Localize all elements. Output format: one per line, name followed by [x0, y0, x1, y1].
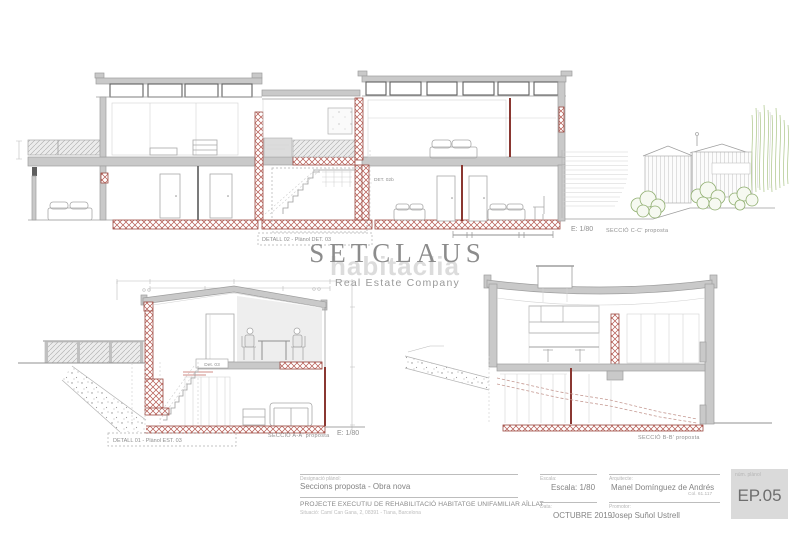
section-cc-title: SECCIÓ C-C' proposta	[606, 227, 669, 234]
lower-interior-bb	[497, 368, 772, 431]
date-value: OCTUBRE 2019	[553, 511, 612, 520]
det-02b-label: DET. 02b	[374, 177, 394, 183]
architect-name: Manel Domínguez de Andrés	[611, 483, 714, 492]
section-bb-drawing: SECCIÓ B-B' proposta	[405, 266, 772, 441]
scale-bar	[453, 231, 553, 238]
slab-bb	[497, 364, 705, 380]
right-module-interior	[355, 71, 572, 228]
designation-value: Seccions proposta - Obra nova	[300, 482, 410, 491]
detail-01-callout: DETALL 01 - Plànol EST. 03	[108, 433, 236, 446]
section-bb-title: SECCIÓ B-B' proposta	[638, 434, 700, 441]
terrace	[16, 140, 100, 159]
fence-and-terrain-aa	[18, 341, 146, 432]
section-aa-title: SECCIÓ A-A' proposta	[268, 432, 330, 439]
setclaus-tagline: Real Estate Company	[290, 277, 505, 289]
section-cc-scale: E: 1/80	[571, 226, 593, 233]
drawing-sheet: DETALL 02 - Plànol DET. 03	[0, 0, 800, 534]
roof-bb	[484, 266, 717, 302]
section-aa-drawing: DETALL 01 - Plànol EST. 03 Det. 03 SECCI…	[18, 279, 365, 446]
divider	[609, 502, 720, 503]
sheet-number-box: núm. plànol EP.05	[731, 469, 788, 519]
det-03-label: Det. 03	[204, 362, 220, 368]
section-aa-scale: E: 1/80	[337, 430, 359, 437]
architect-college: Col. 61.117	[688, 492, 712, 497]
project-title: PROJECTE EXECUTIU DE REHABILITACIÓ HABIT…	[300, 501, 544, 508]
detail-01-label: DETALL 01 - Plànol EST. 03	[113, 438, 182, 444]
floor-slab-hatched	[113, 220, 560, 229]
setclaus-logo: SETCLAUS	[290, 238, 505, 269]
roof-left-module	[95, 73, 262, 97]
divider	[540, 474, 597, 475]
upper-interior-bb	[497, 298, 705, 364]
hatched-wall-left	[255, 112, 263, 220]
scale-label: Escala:	[540, 476, 556, 482]
interior-aa	[145, 293, 365, 433]
promoter-label: Promotor:	[609, 504, 631, 510]
divider	[609, 474, 720, 475]
divider	[300, 474, 518, 475]
terrain-bb	[405, 346, 489, 424]
divider	[540, 502, 597, 503]
hatched-wall-aa	[145, 311, 169, 415]
deck-louvers	[562, 150, 628, 218]
tall-grass	[751, 105, 788, 192]
promoter-name: Josep Suñol Ustrell	[611, 511, 680, 520]
floor-slab	[28, 157, 565, 166]
date-label: Data:	[540, 504, 552, 510]
sheet-number: EP.05	[731, 486, 788, 506]
scale-value: Escala: 1/80	[551, 483, 595, 492]
divider	[300, 497, 518, 498]
architect-label: Arquitecte:	[609, 476, 633, 482]
sheet-number-label: núm. plànol	[735, 472, 761, 478]
project-location: Situació: Camí Can Gana, 2, 08391 - Tian…	[300, 510, 421, 516]
